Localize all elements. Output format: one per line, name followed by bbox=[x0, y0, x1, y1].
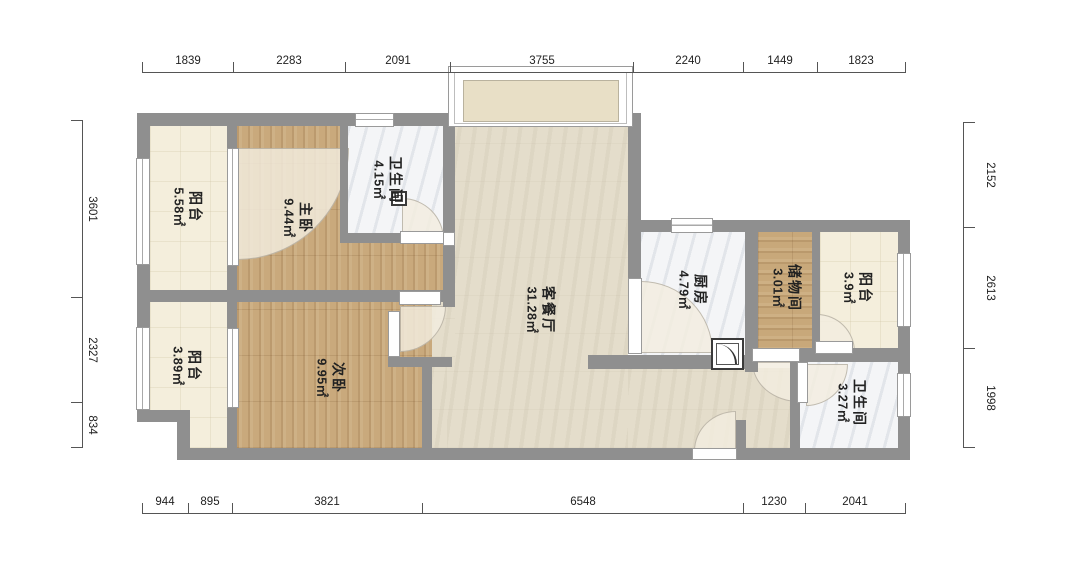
room-area: 9.95㎡ bbox=[313, 358, 329, 397]
dim-top-5: 1449 bbox=[745, 55, 815, 67]
tick bbox=[963, 447, 975, 448]
label-bathroom-bottom: 卫生间 3.27㎡ bbox=[834, 379, 867, 427]
door-leaf-bathroom-bottom bbox=[797, 362, 808, 403]
room-area: 3.89㎡ bbox=[169, 346, 185, 385]
dim-line-left bbox=[82, 120, 83, 447]
wall-second-bedroom-east bbox=[422, 367, 432, 448]
dim-line-right bbox=[963, 122, 964, 447]
dim-bottom-4: 1230 bbox=[739, 496, 809, 508]
doorway-second-bedroom bbox=[399, 291, 441, 305]
window-second-bedroom-balcony bbox=[227, 328, 239, 408]
dim-line-top bbox=[142, 72, 905, 73]
outside-mask bbox=[137, 422, 177, 460]
room-name: 储物间 bbox=[785, 264, 803, 312]
room-name: 次卧 bbox=[329, 358, 347, 397]
tick bbox=[233, 62, 234, 73]
tick bbox=[71, 402, 83, 403]
room-name: 阳台 bbox=[186, 187, 204, 226]
room-name: 客餐厅 bbox=[539, 286, 557, 334]
label-living-dining: 客餐厅 31.28㎡ bbox=[523, 286, 556, 334]
room-area: 4.79㎡ bbox=[675, 270, 691, 309]
tick bbox=[905, 62, 906, 73]
door-band-master-balcony bbox=[227, 148, 239, 266]
tick bbox=[450, 62, 451, 73]
bay-window-sill bbox=[463, 80, 619, 122]
label-storage-room: 储物间 3.01㎡ bbox=[769, 264, 802, 312]
room-name: 卫生间 bbox=[850, 379, 868, 427]
tick bbox=[71, 447, 83, 448]
dim-bottom-3: 6548 bbox=[548, 496, 618, 508]
dim-top-2: 2091 bbox=[363, 55, 433, 67]
dim-top-4: 2240 bbox=[653, 55, 723, 67]
door-frame-notch bbox=[443, 232, 455, 246]
window-bathroom-top bbox=[355, 113, 394, 127]
room-name: 阳台 bbox=[856, 272, 874, 304]
label-balcony-top-right: 阳台 3.9㎡ bbox=[840, 272, 873, 304]
tick bbox=[963, 227, 975, 228]
room-name: 主卧 bbox=[296, 198, 314, 237]
tick bbox=[422, 503, 423, 514]
door-leaf-kitchen bbox=[628, 278, 642, 354]
wall-nook-bottom bbox=[388, 357, 452, 367]
label-balcony-top-left: 阳台 5.58㎡ bbox=[170, 187, 203, 226]
label-balcony-bottom-left: 阳台 3.89㎡ bbox=[169, 346, 202, 385]
tick bbox=[633, 62, 634, 73]
window-balcony-right bbox=[897, 253, 911, 327]
door-leaf-second-bedroom bbox=[388, 311, 400, 357]
tick bbox=[71, 120, 83, 121]
door-bathroom-top bbox=[400, 231, 444, 244]
tick bbox=[142, 62, 143, 73]
dim-bottom-5: 2041 bbox=[820, 496, 890, 508]
label-second-bedroom: 次卧 9.95㎡ bbox=[313, 358, 346, 397]
room-area: 3.27㎡ bbox=[834, 379, 850, 427]
room-name: 厨房 bbox=[691, 270, 709, 309]
water-heater-symbol bbox=[711, 338, 744, 370]
wall-step-vertical bbox=[628, 113, 641, 232]
dim-left-1: 2327 bbox=[86, 337, 98, 363]
wall-bathroom-top-left bbox=[340, 126, 348, 233]
tick bbox=[345, 62, 346, 73]
tick bbox=[963, 348, 975, 349]
room-area: 4.15㎡ bbox=[370, 156, 386, 204]
dim-bottom-2: 3821 bbox=[292, 496, 362, 508]
wall-bathroom-top-bottom bbox=[340, 233, 402, 243]
dim-right-2: 1998 bbox=[984, 385, 996, 411]
room-name: 卫生间 bbox=[386, 156, 404, 204]
dim-right-1: 2613 bbox=[984, 275, 996, 301]
label-master-bedroom: 主卧 9.44㎡ bbox=[280, 198, 313, 237]
window-bathroom-bottom bbox=[897, 373, 911, 417]
dim-left-0: 3601 bbox=[86, 196, 98, 222]
window-balcony-left-upper bbox=[136, 158, 150, 265]
wall-entry-stub bbox=[736, 420, 746, 448]
tick bbox=[743, 62, 744, 73]
tick bbox=[963, 122, 975, 123]
wall-bottom bbox=[177, 448, 910, 460]
wall-storage-balcony-divider bbox=[812, 228, 820, 352]
dim-bottom-1: 895 bbox=[175, 496, 245, 508]
label-kitchen: 厨房 4.79㎡ bbox=[675, 270, 708, 309]
window-balcony-left-lower bbox=[136, 327, 150, 410]
dim-line-bottom bbox=[142, 513, 905, 514]
room-area: 5.58㎡ bbox=[170, 187, 186, 226]
wall-top bbox=[137, 113, 455, 126]
room-area: 31.28㎡ bbox=[523, 286, 539, 334]
door-storage bbox=[752, 348, 800, 362]
room-area: 3.01㎡ bbox=[769, 264, 785, 312]
tick bbox=[71, 297, 83, 298]
room-area: 3.9㎡ bbox=[840, 272, 856, 304]
room-area: 9.44㎡ bbox=[280, 198, 296, 237]
floor-plan: 阳台 5.58㎡ 主卧 9.44㎡ 卫生间 4.15㎡ 客餐厅 31.28㎡ 厨… bbox=[0, 0, 1074, 576]
wall-kitchen-left bbox=[628, 222, 641, 280]
wall-living-west bbox=[443, 125, 455, 307]
dim-top-6: 1823 bbox=[826, 55, 896, 67]
tick bbox=[905, 503, 906, 514]
dim-top-1: 2283 bbox=[254, 55, 324, 67]
door-leaf-balcony-right bbox=[815, 341, 853, 354]
dim-left-2: 834 bbox=[86, 415, 98, 434]
dim-top-3: 3755 bbox=[507, 55, 577, 67]
label-bathroom-top: 卫生间 4.15㎡ bbox=[370, 156, 403, 204]
room-name: 阳台 bbox=[185, 346, 203, 385]
dim-top-0: 1839 bbox=[153, 55, 223, 67]
tick bbox=[817, 62, 818, 73]
door-entry bbox=[692, 448, 737, 460]
window-kitchen bbox=[671, 218, 713, 233]
dim-right-0: 2152 bbox=[984, 162, 996, 188]
floor-east-strip bbox=[432, 357, 447, 448]
